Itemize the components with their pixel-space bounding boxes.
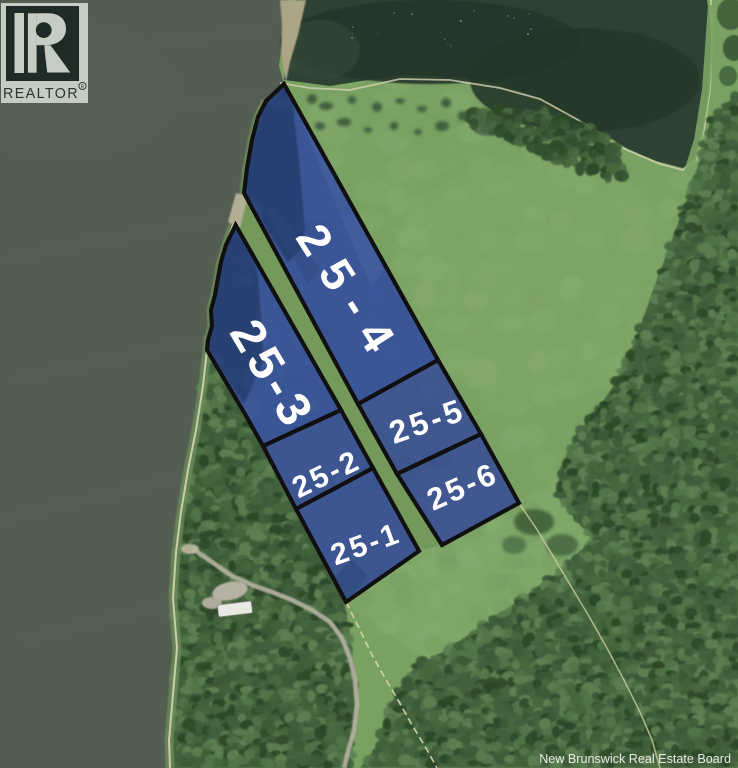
svg-text:New Brunswick Real Estate Boar: New Brunswick Real Estate Board (539, 752, 731, 766)
svg-text:R: R (81, 84, 85, 90)
svg-text:REALTOR: REALTOR (3, 86, 79, 102)
